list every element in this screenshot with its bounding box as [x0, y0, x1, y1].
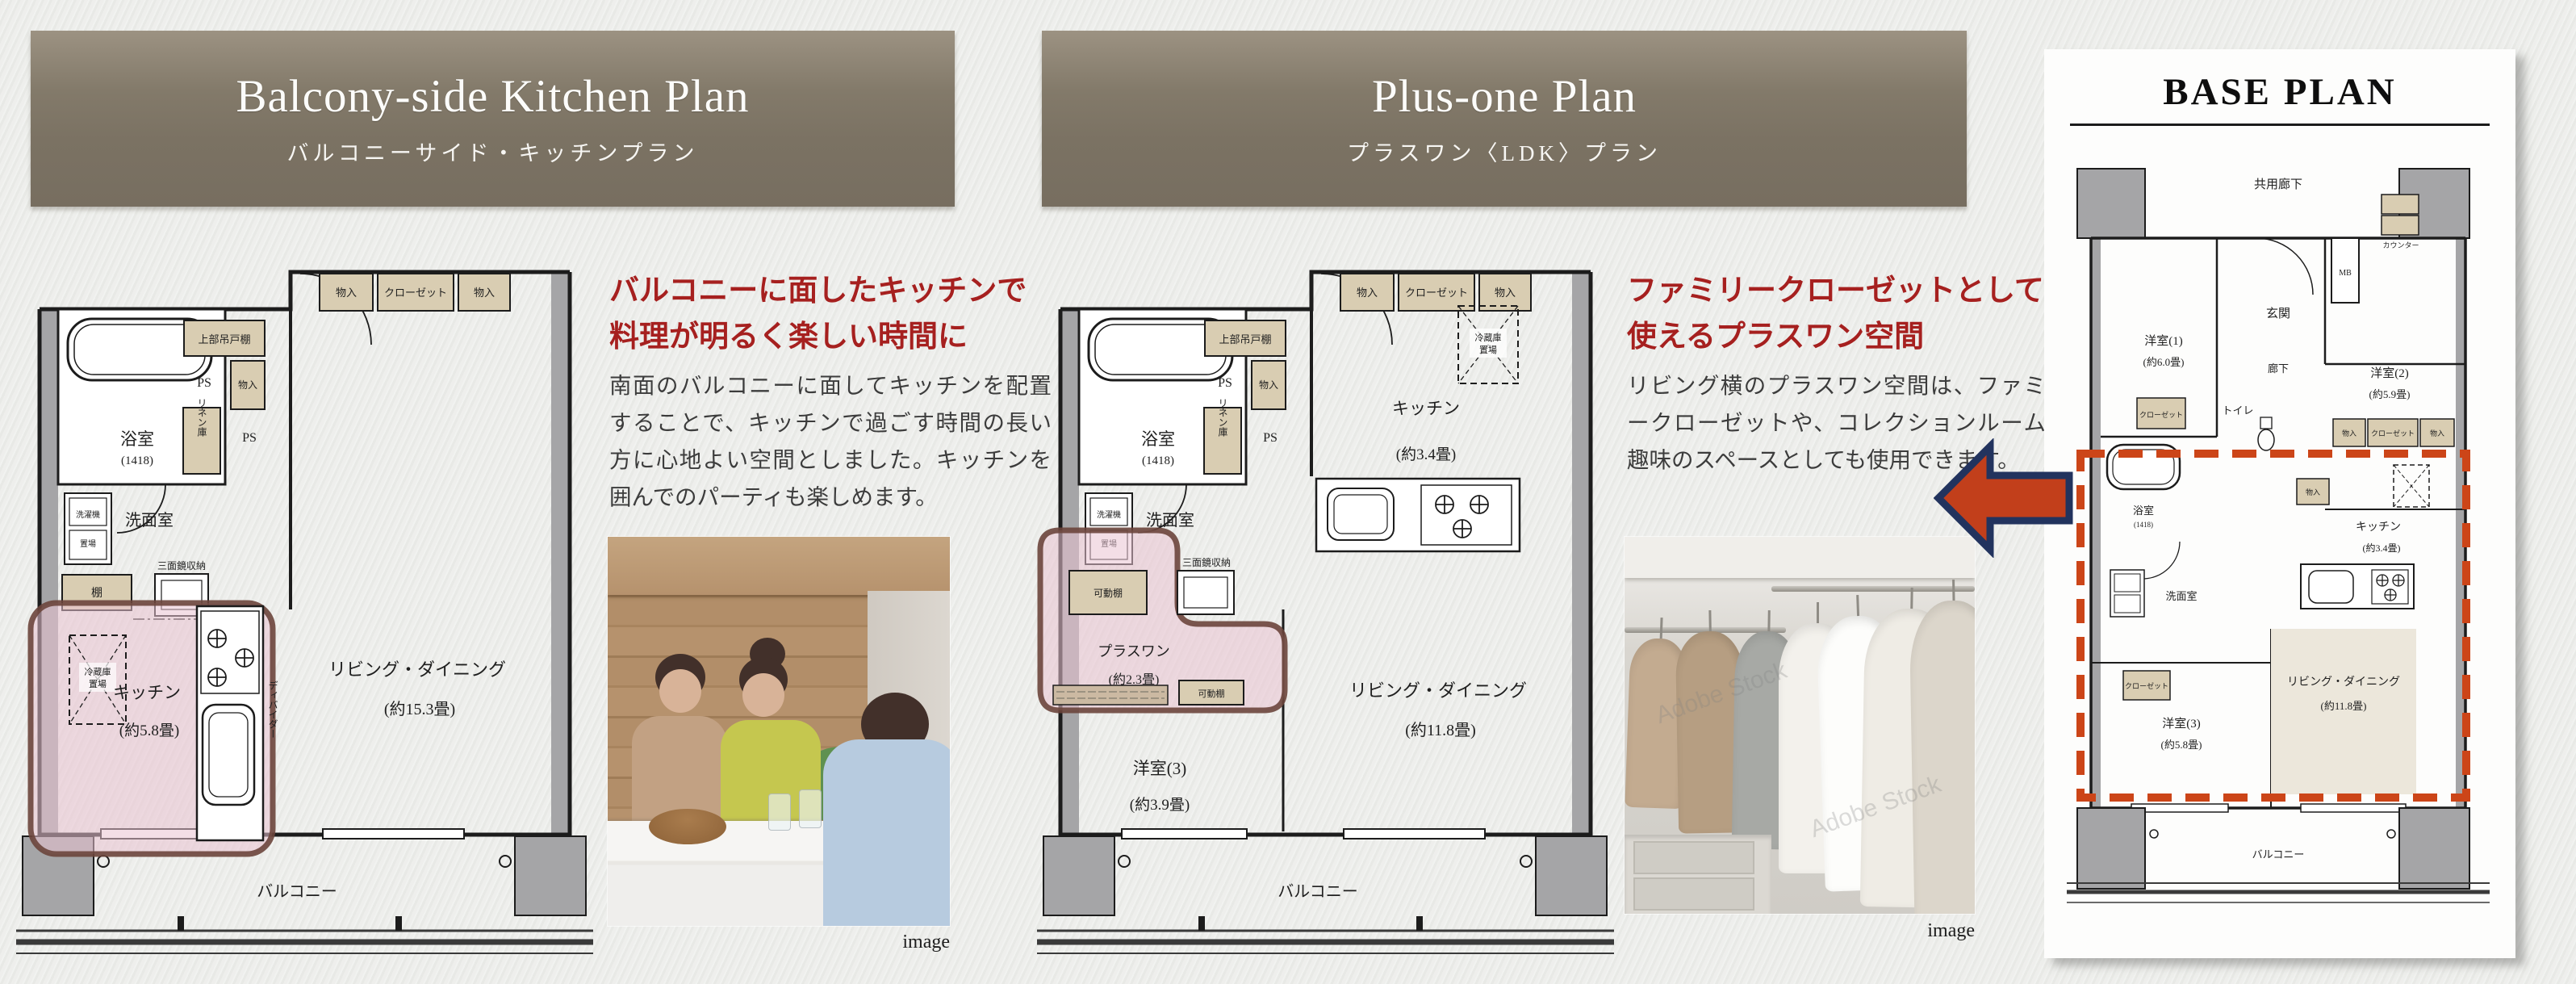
- garment: [1909, 600, 1975, 914]
- washer-space: [2110, 570, 2144, 617]
- movable-shelf-label-2: 可動棚: [1198, 688, 1225, 699]
- photo-kitchen-scene: [608, 537, 950, 926]
- plan2-storage-top: 上部吊戸棚 PS 物入 リネン庫 PS 物入 クローゼット 物入: [1204, 274, 1531, 474]
- plan1-storage-top: 上部吊戸棚 PS 物入 リネン庫 PS 物入 クローゼット 物入: [183, 274, 510, 474]
- person-right: [823, 739, 950, 926]
- mirror-label: 三面鏡収納: [157, 559, 206, 572]
- plan1-living: リビング・ダイニング (約15.3畳): [328, 659, 506, 718]
- mb-label: MB: [2339, 269, 2352, 278]
- floorplan-balcony-side-kitchen: 浴室 (1418) 上部吊戸棚 PS 物入 リネン庫 PS 物入 クローゼット …: [16, 238, 593, 965]
- monoire-label: 物入: [2430, 429, 2444, 438]
- living-label: リビング・ダイニング: [328, 659, 506, 680]
- washroom-label: 洗面室: [1146, 511, 1194, 530]
- washer-label-1: 洗濯機: [1097, 509, 1121, 520]
- bath-size-label: (1418): [121, 454, 153, 467]
- kitchen-label: キッチン: [1392, 399, 1460, 418]
- bath-label: 浴室: [1141, 429, 1175, 449]
- base-room2: 洋室(2) (約5.9畳): [2369, 366, 2411, 400]
- movable-shelf-label-1: 可動棚: [1094, 587, 1123, 599]
- photo-caption-left: image: [608, 932, 950, 953]
- plan-subtitle-left: バルコニーサイド・キッチンプラン: [286, 136, 698, 167]
- closet-label: クローゼット: [2125, 681, 2168, 690]
- washer-space: [65, 493, 111, 564]
- photo-caption-center: image: [1625, 920, 1975, 942]
- room3-size-label: (約5.8畳): [2161, 739, 2202, 751]
- plan2-room3: 洋室(3) (約3.9畳): [1130, 759, 1190, 814]
- heading-line-2: 料理が明るく楽しい時間に: [609, 314, 1061, 360]
- person-left-head: [659, 669, 701, 713]
- brochure-page: Balcony-side Kitchen Plan バルコニーサイド・キッチンプ…: [0, 0, 2576, 984]
- drawer-chest: [1625, 835, 1771, 914]
- washer-label-1: 洗濯機: [76, 509, 100, 520]
- plan-subtitle-center: プラスワン〈LDK〉プラン: [1347, 136, 1662, 167]
- kitchen-size-label: (約5.8畳): [119, 722, 179, 739]
- monoire-label-1: 物入: [1259, 379, 1278, 391]
- kitchen-label: キッチン: [113, 683, 181, 702]
- arrow-left-icon: [1934, 438, 2076, 558]
- living-size-label: (約11.8畳): [2321, 700, 2367, 712]
- living-size-label: (約11.8畳): [1405, 721, 1476, 739]
- bath-size-label: (1418): [2134, 521, 2153, 529]
- floorplan-plus-one: 浴室 (1418) 上部吊戸棚 PS 物入 リネン庫 PS 物入 クローゼット …: [1037, 238, 1614, 965]
- room3-label: 洋室(3): [1133, 759, 1187, 778]
- base-plan-title: BASE PLAN: [2044, 70, 2515, 114]
- person-center-head: [742, 673, 784, 717]
- fridge-label-2: 置場: [89, 679, 107, 689]
- monoire-label-3: 物入: [1495, 287, 1516, 299]
- shelf-label: 棚: [91, 587, 102, 600]
- washer-label-2: 置場: [80, 538, 96, 549]
- room3-size-label: (約3.9畳): [1130, 796, 1190, 814]
- toilet-label: トイレ: [2222, 404, 2253, 417]
- base-room3: クローゼット 洋室(3) (約5.8畳): [2123, 671, 2202, 751]
- plan2-kitchen: 冷蔵庫 置場 キッチン (約3.4畳): [1316, 306, 1520, 551]
- heading-line-2: 使えるプラスワン空間: [1627, 314, 2079, 360]
- linen-label: リネン庫: [1217, 398, 1228, 438]
- monoire-label-2: 物入: [1357, 287, 1378, 299]
- photo-family-closet: Adobe Stock Adobe Stock: [1625, 537, 1975, 914]
- title-underline: [2070, 124, 2490, 126]
- glass-1: [768, 793, 791, 831]
- ps-label-2: PS: [1263, 431, 1278, 445]
- closet-label: クローゼット: [384, 287, 447, 299]
- heading-line-1: バルコニーに面したキッチンで: [609, 268, 1061, 314]
- room2-size-label: (約5.9畳): [2369, 388, 2411, 400]
- mirror-label: 三面鏡収納: [1182, 556, 1231, 568]
- closet-label: クローゼット: [2371, 429, 2415, 438]
- base-plan-panel: BASE PLAN: [2044, 49, 2515, 958]
- entrance-label: 玄関: [2266, 307, 2290, 320]
- fridge-label-1: 冷蔵庫: [1475, 332, 1502, 343]
- body-balcony-kitchen: 南面のバルコニーに面してキッチンを配置することで、キッチンで過ごす時間の長い方に…: [609, 367, 1052, 516]
- base-storage-mid: 物入 クローゼット 物入 物入: [2297, 419, 2454, 505]
- monoire-label: 物入: [2342, 429, 2356, 438]
- heading-plus-one: ファミリークローゼットとしても 使えるプラスワン空間: [1627, 268, 2079, 361]
- kitchen-size-label: (約3.4畳): [2363, 542, 2401, 554]
- fridge-label-1: 冷蔵庫: [85, 666, 111, 677]
- drawer: [1633, 877, 1754, 911]
- bath-size-label: (1418): [1142, 454, 1174, 467]
- bath-label: 浴室: [2133, 505, 2154, 517]
- plan2-living: リビング・ダイニング (約11.8畳): [1349, 680, 1527, 739]
- glass-2: [799, 789, 822, 828]
- heading-line-1: ファミリークローゼットとしても: [1627, 268, 2079, 314]
- kitchen-size-label: (約3.4畳): [1396, 446, 1456, 463]
- monoire-label-3: 物入: [474, 287, 495, 299]
- shared-corridor-label: 共用廊下: [2254, 178, 2302, 191]
- plus-one-highlight-region: [1040, 530, 1285, 710]
- banner-plus-one-plan: Plus-one Plan プラスワン〈LDK〉プラン: [1042, 31, 1967, 207]
- living-label: リビング・ダイニング: [2287, 676, 2400, 689]
- ceiling: [608, 537, 950, 595]
- living-label: リビング・ダイニング: [1349, 680, 1527, 701]
- plan-title-center: Plus-one Plan: [1372, 70, 1637, 123]
- floorplan-base: 共用廊下 MB カウンター 玄関 洋室(1) (約6.0畳) クローゼット 洋室…: [2059, 162, 2498, 921]
- closet-label: クローゼット: [2139, 410, 2183, 419]
- hanger-rail-right: [1771, 586, 1975, 592]
- base-room1: 洋室(1) (約6.0畳) クローゼット: [2137, 334, 2185, 429]
- plan-title-left: Balcony-side Kitchen Plan: [236, 70, 749, 123]
- base-entry-zone: MB カウンター 玄関: [2266, 195, 2419, 320]
- upper-cabinet-label: 上部吊戸棚: [1219, 333, 1271, 345]
- counter-label: カウンター: [2382, 241, 2419, 249]
- room3-label: 洋室(3): [2162, 717, 2201, 731]
- base-living: リビング・ダイニング (約11.8畳): [2271, 629, 2416, 794]
- linen-label: リネン庫: [196, 398, 207, 438]
- fridge-label-2: 置場: [1479, 345, 1497, 355]
- base-bathroom: 浴室 (1418): [2107, 445, 2180, 579]
- heading-balcony-kitchen: バルコニーに面したキッチンで 料理が明るく楽しい時間に: [609, 268, 1061, 361]
- upper-cabinet-label: 上部吊戸棚: [198, 333, 250, 345]
- fridge-space: 冷蔵庫 置場: [1458, 306, 1518, 383]
- monoire-label-2: 物入: [336, 287, 357, 299]
- banner-balcony-side-kitchen-plan: Balcony-side Kitchen Plan バルコニーサイド・キッチンプ…: [31, 31, 955, 207]
- monoire-label-1: 物入: [238, 379, 257, 391]
- drawer: [1633, 841, 1754, 874]
- kitchen-label: キッチン: [2356, 521, 2401, 534]
- balcony-label: バルコニー: [2252, 848, 2305, 860]
- ps-label-1: PS: [197, 376, 211, 390]
- base-toilet: トイレ: [2222, 404, 2274, 450]
- balcony-label: バルコニー: [257, 883, 337, 901]
- balcony-label: バルコニー: [1278, 883, 1358, 901]
- corridor-label: 廊下: [2268, 362, 2289, 375]
- washroom-label: 洗面室: [125, 511, 174, 530]
- sink: [203, 705, 254, 805]
- plus-one-label: プラスワン: [1098, 643, 1170, 659]
- washroom-label: 洗面室: [2165, 590, 2197, 602]
- ps-label-1: PS: [1218, 376, 1232, 390]
- room2-label: 洋室(2): [2370, 366, 2409, 380]
- ps-label-2: PS: [242, 431, 257, 445]
- monoire-label: 物入: [2306, 488, 2320, 496]
- entry-door-arc: [2256, 238, 2313, 295]
- room1-label: 洋室(1): [2144, 334, 2183, 348]
- room1-size-label: (約6.0畳): [2143, 356, 2185, 368]
- living-size-label: (約15.3畳): [384, 700, 455, 718]
- closet-label: クローゼット: [1405, 287, 1468, 299]
- fridge-space: [2394, 465, 2429, 507]
- closet-top-shelf: [1625, 537, 1975, 578]
- bath-label: 浴室: [120, 429, 154, 449]
- divider-label: ディバイダー: [267, 680, 278, 739]
